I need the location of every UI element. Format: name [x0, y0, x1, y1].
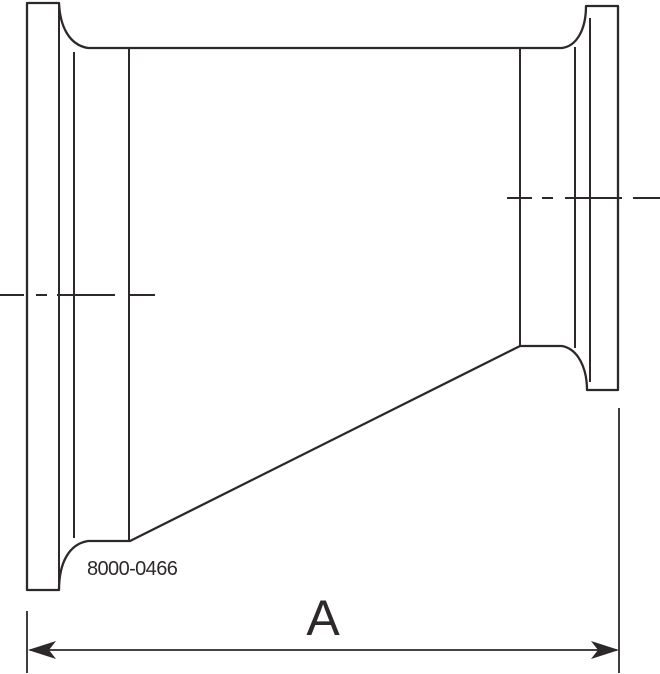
- dimension-a-label: A: [306, 590, 340, 646]
- technical-drawing-canvas: 8000-0466 A: [0, 0, 660, 674]
- reducer-outline: [27, 3, 618, 590]
- part-number-label: 8000-0466: [87, 558, 178, 580]
- eccentric-reducer-drawing: 8000-0466 A: [0, 0, 660, 674]
